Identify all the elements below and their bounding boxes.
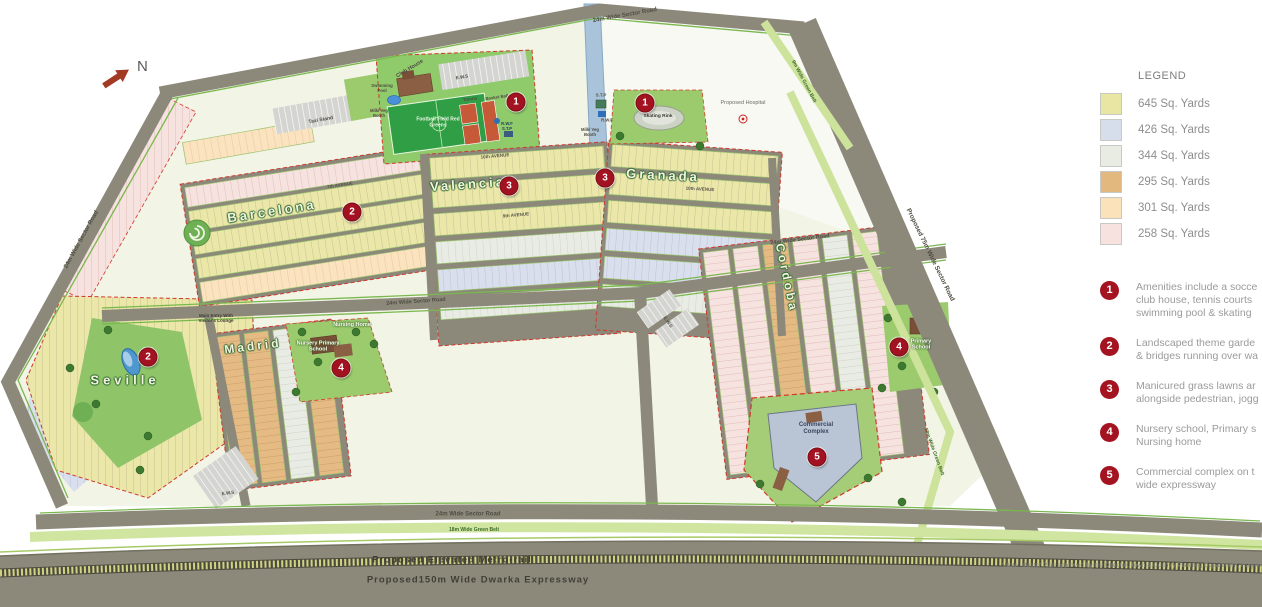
amenity-map-marker: 4	[332, 359, 351, 378]
expressway-band	[0, 541, 1262, 607]
amenity-text: Amenities include a socce club house, te…	[1136, 281, 1257, 320]
legend-item: 258 Sq. Yards	[1100, 221, 1210, 247]
label-rwf: R.W.F	[601, 119, 613, 124]
label-proposed-hospital: Proposed Hospital	[720, 100, 766, 106]
label-milk-veg-booth: Milk/ Veg Booth	[369, 109, 389, 119]
amenity-item: 3 Manicured grass lawns ar alongside ped…	[1100, 380, 1262, 406]
marker-number: 3	[506, 181, 512, 192]
amenity-map-marker: 2	[343, 203, 362, 222]
legend-color-swatch	[1100, 223, 1122, 245]
stp-plant-icon	[504, 131, 513, 137]
legend-color-swatch	[1100, 93, 1122, 115]
rwf-tank-icon	[598, 111, 606, 117]
legend-item: 344 Sq. Yards	[1100, 143, 1210, 169]
label-nursing-home: Nursing Home	[332, 322, 372, 328]
amenity-map-marker: 5	[808, 448, 827, 467]
label-skating-rink: Skating Rink	[642, 114, 674, 120]
road-label-bottom-sector: 24m Wide Sector Road	[436, 512, 501, 519]
district-label-seville: Seville	[90, 374, 159, 389]
district-valencia	[425, 142, 620, 346]
north-arrow-icon	[100, 64, 133, 92]
amenity-text: Commercial complex on t wide expressway	[1136, 466, 1254, 492]
label-rwf-stp: R.W.F S.T.P	[497, 122, 517, 132]
amenity-number-badge: 3	[1100, 380, 1119, 399]
label-nursery-school: Nursery Primary School	[296, 341, 340, 354]
legend-item-label: 645 Sq. Yards	[1138, 98, 1210, 110]
marker-number: 3	[602, 173, 608, 184]
legend-item: 295 Sq. Yards	[1100, 169, 1210, 195]
amenity-map-marker: 1	[507, 93, 526, 112]
amenity-map-marker: 1	[636, 94, 655, 113]
label-main-entry: Main Entry With Visitor's Lounge	[195, 313, 237, 323]
marker-number: 1	[513, 97, 519, 108]
legend-item-label: 426 Sq. Yards	[1138, 124, 1210, 136]
legend-item-label: 301 Sq. Yards	[1138, 202, 1210, 214]
legend-color-swatch	[1100, 197, 1122, 219]
legend-panel: LEGEND 645 Sq. Yards 426 Sq. Yards 344 S…	[1100, 70, 1210, 247]
label-expressway: Proposed150m Wide Dwarka Expressway	[367, 576, 589, 587]
label-stp: S.T.P	[596, 92, 607, 97]
amenity-text: Landscaped theme garde & bridges running…	[1136, 337, 1258, 363]
approval-note: *Note: Master Plan approved by the Direc…	[1002, 562, 1262, 569]
amenity-item: 5 Commercial complex on t wide expresswa…	[1100, 466, 1262, 492]
amenity-number-badge: 4	[1100, 423, 1119, 442]
amenity-item: 2 Landscaped theme garde & bridges runni…	[1100, 337, 1262, 363]
legend-item: 301 Sq. Yards	[1100, 195, 1210, 221]
label-milk-veg-booth: Milk/ Veg Booth	[580, 128, 600, 138]
legend-title: LEGEND	[1138, 70, 1210, 82]
marker-number: 4	[338, 363, 344, 374]
legend-item-label: 258 Sq. Yards	[1138, 228, 1210, 240]
stp-plant-icon	[596, 100, 606, 108]
master-plan-page: N Barcelona Seville Madrid Valencia Gran…	[0, 0, 1262, 607]
amenity-map-marker: 3	[596, 169, 615, 188]
label-metro-rail: Proposed Elevated Metro-rail	[372, 556, 531, 567]
legend-color-swatch	[1100, 171, 1122, 193]
amenity-map-marker: 3	[500, 177, 519, 196]
label-football-field: Football Field Red Greens	[415, 117, 461, 129]
amenity-item: 1 Amenities include a socce club house, …	[1100, 281, 1262, 320]
amenity-text: Nursery school, Primary s Nursing home	[1136, 423, 1256, 449]
amenities-list: 1 Amenities include a socce club house, …	[1100, 281, 1262, 509]
label-green-belt-18m-bottom: 18m Wide Green Belt	[449, 528, 499, 534]
tennis-court	[462, 124, 480, 145]
amenity-map-marker: 2	[139, 348, 158, 367]
legend-color-swatch	[1100, 145, 1122, 167]
tennis-court	[460, 103, 478, 124]
park-circle	[73, 402, 93, 422]
marker-number: 2	[145, 352, 151, 363]
marker-number: 2	[349, 207, 355, 218]
marker-number: 5	[814, 452, 820, 463]
label-swimming-pool: Swimming Pool	[367, 84, 397, 94]
legend-item: 426 Sq. Yards	[1100, 117, 1210, 143]
legend-item: 645 Sq. Yards	[1100, 91, 1210, 117]
amenity-map-marker: 4	[890, 338, 909, 357]
amenity-item: 4 Nursery school, Primary s Nursing home	[1100, 423, 1262, 449]
south-corridor	[0, 503, 1262, 607]
amenity-number-badge: 1	[1100, 281, 1119, 300]
site-plan-map	[0, 0, 1262, 607]
legend-item-label: 295 Sq. Yards	[1138, 176, 1210, 188]
legend-item-label: 344 Sq. Yards	[1138, 150, 1210, 162]
north-label: N	[137, 58, 148, 75]
marker-number: 4	[896, 342, 902, 353]
label-commercial-complex: Commercial Complex	[788, 422, 844, 436]
amenity-number-badge: 2	[1100, 337, 1119, 356]
legend-color-swatch	[1100, 119, 1122, 141]
amenity-text: Manicured grass lawns ar alongside pedes…	[1136, 380, 1259, 406]
legend-items: 645 Sq. Yards 426 Sq. Yards 344 Sq. Yard…	[1100, 91, 1210, 247]
swimming-pool-icon	[388, 96, 401, 105]
amenity-number-badge: 5	[1100, 466, 1119, 485]
marker-number: 1	[642, 98, 648, 109]
spiral-garden-icon	[184, 220, 210, 246]
